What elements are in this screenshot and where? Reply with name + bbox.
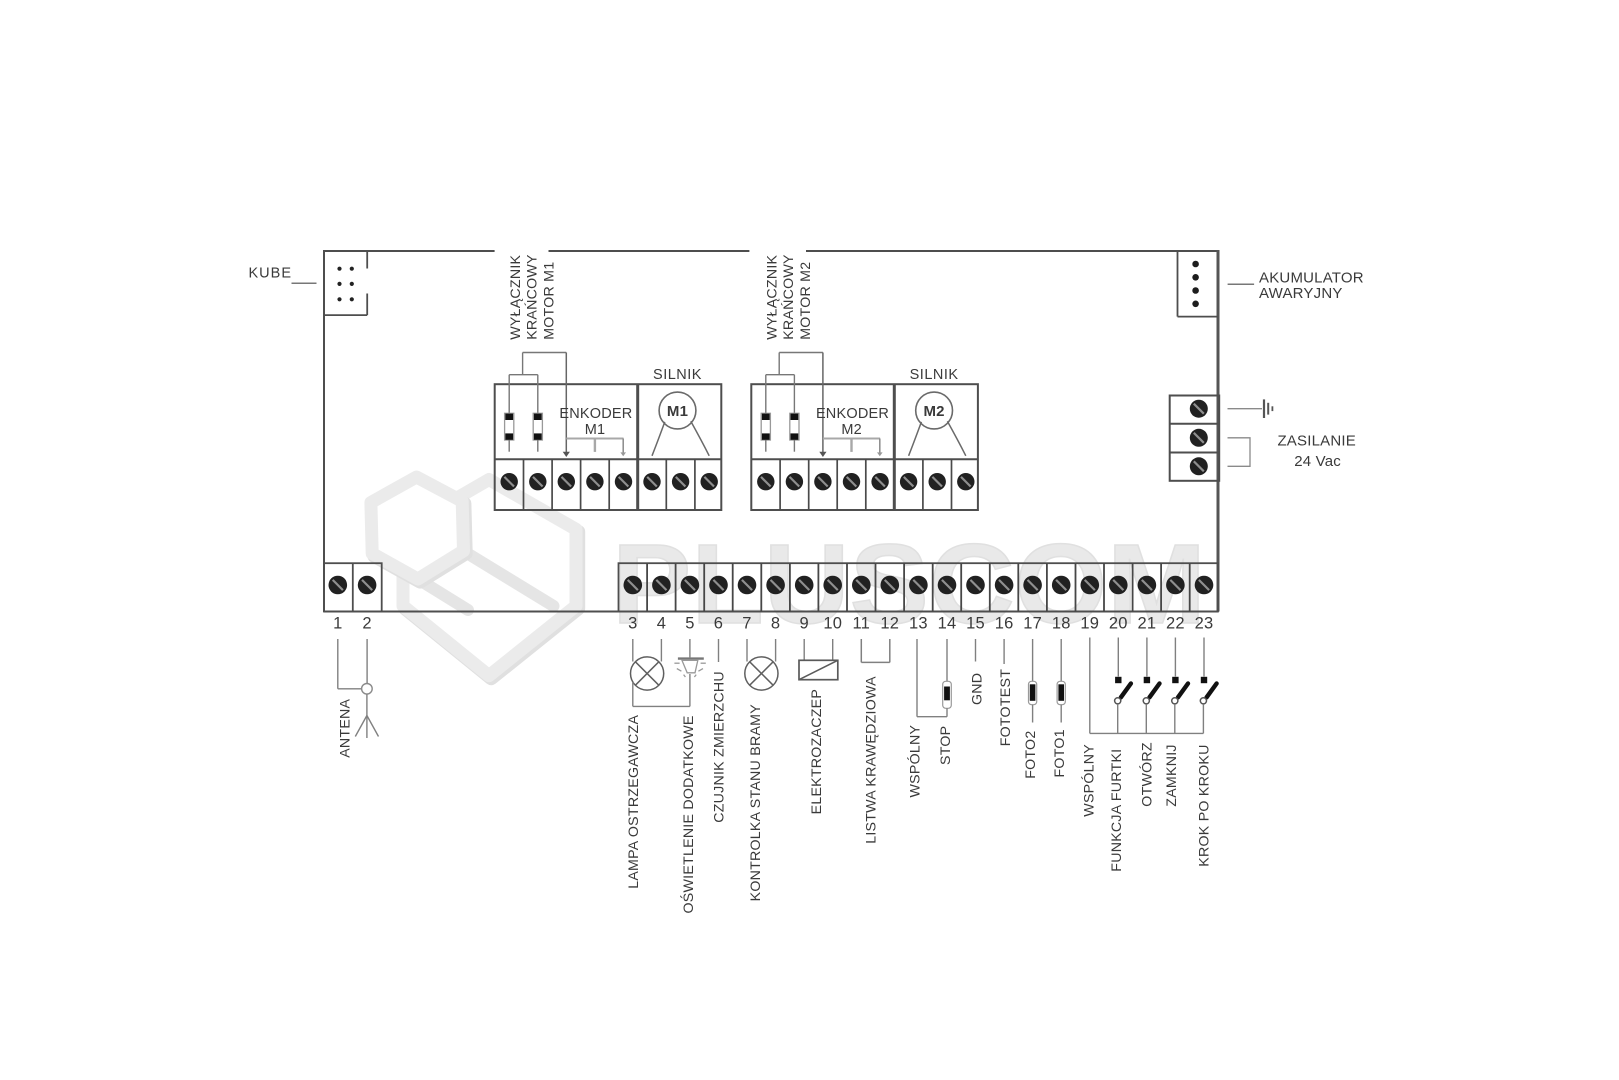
svg-text:8: 8 [771, 615, 780, 633]
svg-text:16: 16 [995, 615, 1014, 633]
svg-text:17: 17 [1023, 615, 1042, 633]
svg-text:21: 21 [1138, 615, 1157, 633]
svg-text:19: 19 [1080, 615, 1099, 633]
svg-text:OŚWIETLENIE DODATKOWE: OŚWIETLENIE DODATKOWE [679, 715, 697, 913]
svg-text:1: 1 [333, 615, 342, 633]
svg-text:ELEKTROZACZEP: ELEKTROZACZEP [809, 689, 825, 814]
svg-text:22: 22 [1166, 615, 1185, 633]
svg-text:KONTROLKA STANU BRAMY: KONTROLKA STANU BRAMY [748, 704, 764, 902]
svg-text:6: 6 [714, 615, 723, 633]
svg-text:ENKODER: ENKODER [559, 406, 632, 422]
svg-text:10: 10 [823, 615, 842, 633]
svg-text:ANTENA: ANTENA [337, 698, 353, 757]
svg-text:11: 11 [853, 615, 871, 633]
svg-text:FOTO1: FOTO1 [1052, 729, 1068, 777]
svg-text:WYŁĄCZNIK: WYŁĄCZNIK [508, 254, 524, 339]
svg-text:GND: GND [969, 673, 985, 705]
svg-text:MOTOR M2: MOTOR M2 [798, 262, 814, 340]
svg-text:3: 3 [628, 615, 637, 633]
svg-text:18: 18 [1052, 615, 1071, 633]
svg-text:AKUMULATOR: AKUMULATOR [1259, 270, 1364, 287]
svg-text:KRAŃCOWY: KRAŃCOWY [524, 254, 541, 340]
svg-text:LISTWA KRAWĘDZIOWA: LISTWA KRAWĘDZIOWA [863, 676, 879, 844]
svg-text:M2: M2 [841, 422, 862, 438]
svg-text:KUBE: KUBE [249, 266, 293, 282]
svg-text:20: 20 [1109, 615, 1128, 633]
svg-text:WSPÓLNY: WSPÓLNY [906, 725, 923, 798]
svg-text:STOP: STOP [938, 726, 954, 765]
svg-text:4: 4 [657, 615, 666, 633]
svg-text:5: 5 [685, 615, 694, 633]
svg-text:WYŁĄCZNIK: WYŁĄCZNIK [765, 254, 781, 339]
svg-text:M1: M1 [585, 422, 606, 438]
svg-text:9: 9 [800, 615, 809, 633]
svg-text:12: 12 [880, 615, 899, 633]
svg-text:CZUJNIK ZMIERZCHU: CZUJNIK ZMIERZCHU [712, 671, 728, 823]
svg-text:23: 23 [1195, 615, 1214, 633]
svg-text:15: 15 [966, 615, 985, 633]
svg-text:ENKODER: ENKODER [816, 406, 889, 422]
svg-text:FOTO2: FOTO2 [1023, 731, 1039, 779]
svg-text:WSPÓLNY: WSPÓLNY [1081, 744, 1098, 817]
svg-text:13: 13 [909, 615, 928, 633]
svg-text:7: 7 [742, 615, 751, 633]
svg-text:SILNIK: SILNIK [910, 367, 959, 383]
svg-text:24 Vac: 24 Vac [1294, 453, 1341, 470]
svg-text:ZASILANIE: ZASILANIE [1277, 432, 1356, 449]
svg-text:ZAMKNIJ: ZAMKNIJ [1164, 744, 1180, 806]
svg-text:2: 2 [362, 615, 371, 633]
svg-text:AWARYJNY: AWARYJNY [1259, 285, 1343, 302]
svg-text:SILNIK: SILNIK [653, 367, 702, 383]
svg-text:FOTOTEST: FOTOTEST [998, 669, 1014, 746]
svg-text:LAMPA OSTRZEGAWCZA: LAMPA OSTRZEGAWCZA [626, 715, 642, 889]
svg-text:OTWÓRZ: OTWÓRZ [1139, 742, 1156, 807]
svg-text:FUNKCJA FURTKI: FUNKCJA FURTKI [1109, 749, 1125, 872]
svg-text:M2: M2 [923, 403, 944, 420]
svg-text:MOTOR M1: MOTOR M1 [541, 262, 557, 340]
svg-text:KROK PO KROKU: KROK PO KROKU [1197, 744, 1213, 866]
svg-text:14: 14 [938, 615, 957, 633]
svg-text:KRAŃCOWY: KRAŃCOWY [780, 254, 797, 340]
svg-text:M1: M1 [667, 403, 688, 420]
